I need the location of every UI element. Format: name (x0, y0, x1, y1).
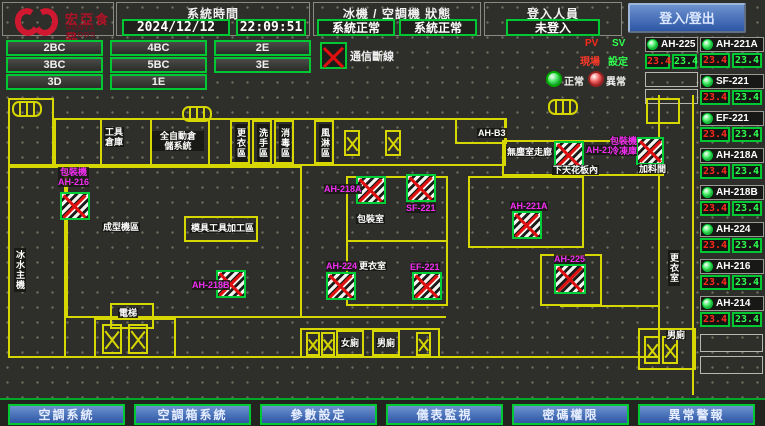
unit-pv-value: 23.4 (645, 54, 670, 69)
unit-sv-value: 23.4 (732, 53, 762, 68)
nav-alarm-button[interactable]: 異常警報 (638, 404, 755, 425)
unit-sf-221[interactable]: SF-221 (700, 74, 764, 89)
room-label-v3: 消毒區 (279, 124, 291, 162)
unit-lamp-icon (702, 39, 713, 50)
brand-area: 宏亞食品 HUNYA FOODS (2, 2, 114, 36)
shaft-x-icon (306, 332, 320, 356)
stair-icon (182, 106, 212, 122)
nav-password-button[interactable]: 密碼權限 (512, 404, 629, 425)
sv-header: SV (612, 38, 625, 49)
unit-name-label: AH-214 (716, 298, 750, 309)
plan-wall (208, 118, 210, 166)
shaft-x-icon (128, 324, 148, 354)
plan-wall (560, 305, 660, 307)
unit-name-label: AH-225 (661, 39, 695, 50)
room-label-ceiling: 下天花板內 (552, 165, 599, 175)
stair-icon (12, 101, 42, 117)
shaft-x-icon (416, 332, 431, 356)
login-user-display: 未登入 (506, 19, 600, 36)
normal-lamp-icon (546, 71, 562, 87)
login-logout-button[interactable]: 登入/登出 (628, 3, 746, 33)
room-label-changing2: 更衣室 (668, 250, 680, 286)
unit-ah-214[interactable]: AH-214 (700, 296, 764, 311)
stair-icon (548, 99, 578, 115)
nav-ahu-system-button[interactable]: 空調箱系統 (134, 404, 251, 425)
unit-pv-value: 23.4 (700, 275, 730, 290)
plan-wall (66, 166, 302, 318)
unit-sv-value: 23.4 (732, 238, 762, 253)
shaft-x-icon (321, 332, 335, 356)
room-label-forming: 成型機區 (102, 222, 140, 232)
pv-header: PV (585, 38, 598, 49)
plan-unit-label: 包裝機 冷凍庫 (610, 136, 637, 156)
plan-wall (100, 118, 102, 166)
unit-pv-value: 23.4 (700, 164, 730, 179)
unit-sv-value: 23.4 (732, 127, 762, 142)
unit-lamp-icon (702, 113, 713, 124)
unit-sv-value: 23.4 (732, 164, 762, 179)
empty-slot (700, 334, 763, 352)
nav-hvac-system-button[interactable]: 空調系統 (8, 404, 125, 425)
unit-name-label: AH-224 (716, 224, 750, 235)
empty-slot (645, 72, 698, 87)
unit-lamp-icon (702, 187, 713, 198)
unit-pv-value: 23.4 (700, 90, 730, 105)
bottom-nav-bar: 空調系統 空調箱系統 參數設定 儀表監視 密碼權限 異常警報 (0, 398, 765, 426)
plan-unit-label: AH-224 (326, 261, 357, 271)
unit-ah-216[interactable]: AH-216 (700, 259, 764, 274)
unit-pv-value: 23.4 (700, 127, 730, 142)
floor-button-3e[interactable]: 3E (214, 57, 311, 73)
plan-unit-label: SF-221 (406, 203, 436, 213)
unit-sv-value: 23.4 (732, 312, 762, 327)
floor-button-4bc[interactable]: 4BC (110, 40, 207, 56)
unit-lamp-icon (647, 39, 658, 50)
room-label-tool: 工具 倉庫 (104, 127, 124, 147)
plan-unit-label: 包裝機 AH-216 (58, 167, 89, 187)
unit-name-label: SF-221 (716, 76, 749, 87)
unit-lamp-icon (702, 298, 713, 309)
room-label-packing: 包裝室 (356, 214, 385, 224)
unit-ah-225[interactable]: AH-225 (645, 37, 698, 52)
room-label-v2: 洗手區 (257, 124, 269, 162)
room-label-v4: 風淋區 (319, 124, 331, 162)
unit-pv-value: 23.4 (700, 312, 730, 327)
room-label-elevator: 電梯 (118, 308, 138, 318)
comm-loss-label: 通信斷線 (350, 48, 394, 64)
shaft-x-icon (644, 336, 660, 364)
shaft-x-icon (102, 324, 122, 354)
room-label-feed: 加料間 (638, 164, 667, 174)
room-label-toilet-m2: 男廁 (666, 330, 686, 340)
chiller-status-display: 系統正常 (317, 19, 395, 36)
empty-slot (700, 356, 763, 374)
shaft-x-icon (385, 130, 401, 156)
plan-wall (658, 95, 660, 357)
ahu-comm-loss-icon[interactable] (60, 192, 90, 220)
shaft-x-icon (344, 130, 360, 156)
unit-pv-value: 23.4 (700, 238, 730, 253)
ahu-comm-loss-icon[interactable] (512, 211, 542, 239)
unit-ef-221[interactable]: EF-221 (700, 111, 764, 126)
shaft-x-icon (662, 336, 678, 364)
unit-ah-224[interactable]: AH-224 (700, 222, 764, 237)
unit-name-label: AH-216 (716, 261, 750, 272)
plan-unit-label: AH-218A (324, 184, 362, 194)
plan-unit-label: AH-218B (192, 280, 230, 290)
plan-unit-label: EF-221 (410, 262, 440, 272)
pv-sub-label: 現場 (580, 53, 600, 68)
unit-name-label: AH-218B (716, 187, 758, 198)
unit-lamp-icon (702, 150, 713, 161)
room-label-auto-storage: 全自動倉 儲系統 (152, 131, 204, 151)
floor-button-5bc[interactable]: 5BC (110, 57, 207, 73)
room-label-chiller: 冰水主機 (14, 248, 26, 292)
unit-sv-value: 23.4 (732, 90, 762, 105)
unit-lamp-icon (702, 224, 713, 235)
floor-button-3bc[interactable]: 3BC (6, 57, 103, 73)
floor-button-2e[interactable]: 2E (214, 40, 311, 56)
plan-wall (348, 240, 446, 242)
unit-pv-value: 23.4 (700, 53, 730, 68)
nav-meter-monitor-button[interactable]: 儀表監視 (386, 404, 503, 425)
unit-pv-value: 23.4 (700, 201, 730, 216)
unit-sv-value: 23.4 (672, 54, 697, 69)
floor-button-1e[interactable]: 1E (110, 74, 207, 90)
room-label-changing: 更衣室 (358, 261, 387, 271)
brand-logo-icon (13, 8, 59, 36)
abnormal-lamp-icon (588, 71, 604, 87)
room-label-toilet-w: 女廁 (340, 338, 360, 348)
room-label-v1: 更衣區 (235, 124, 247, 162)
date-display: 2024/12/12 (122, 19, 230, 36)
ahu-comm-loss-icon[interactable] (326, 272, 356, 300)
normal-label: 正常 (564, 73, 584, 88)
plan-unit-label: AH-221A (510, 201, 548, 211)
time-display: 22:09:51 (236, 19, 306, 36)
plan-unit-label: AH-225 (554, 254, 585, 264)
unit-name-label: EF-221 (716, 113, 749, 124)
floor-button-3d[interactable]: 3D (6, 74, 103, 90)
unit-ah-218b[interactable]: AH-218B (700, 185, 764, 200)
room-label-toilet-m: 男廁 (376, 338, 396, 348)
unit-sv-value: 23.4 (732, 275, 762, 290)
room-label-ahb3: AH-B3 (477, 128, 507, 138)
plan-wall (646, 98, 680, 124)
room-label-clean-corridor: 無塵室走廊 (506, 147, 553, 157)
brand-subtitle: HUNYA FOODS (66, 25, 113, 39)
nav-parameters-button[interactable]: 參數設定 (260, 404, 377, 425)
sv-sub-label: 設定 (608, 53, 628, 68)
floor-button-2bc[interactable]: 2BC (6, 40, 103, 56)
unit-sv-value: 23.4 (732, 201, 762, 216)
hmi-screen: 宏亞食品 HUNYA FOODS 系統時間 2024/12/12 22:09:5… (0, 0, 765, 426)
plan-wall (302, 316, 446, 318)
ahu-comm-loss-icon[interactable] (636, 137, 664, 165)
ahu-comm-loss-icon[interactable] (412, 272, 442, 300)
comm-loss-icon (320, 42, 347, 69)
abnormal-label: 異常 (606, 73, 626, 88)
ahu-comm-loss-icon[interactable] (554, 264, 586, 294)
room-label-mold: 模具工具加工區 (190, 223, 255, 233)
ahu-comm-loss-icon[interactable] (406, 174, 436, 202)
unit-ah-221a[interactable]: AH-221A (700, 37, 764, 52)
unit-lamp-icon (702, 261, 713, 272)
ahu-status-display: 系統正常 (399, 19, 477, 36)
unit-name-label: AH-218A (716, 150, 758, 161)
unit-name-label: AH-221A (716, 39, 758, 50)
unit-ah-218a[interactable]: AH-218A (700, 148, 764, 163)
unit-lamp-icon (702, 76, 713, 87)
